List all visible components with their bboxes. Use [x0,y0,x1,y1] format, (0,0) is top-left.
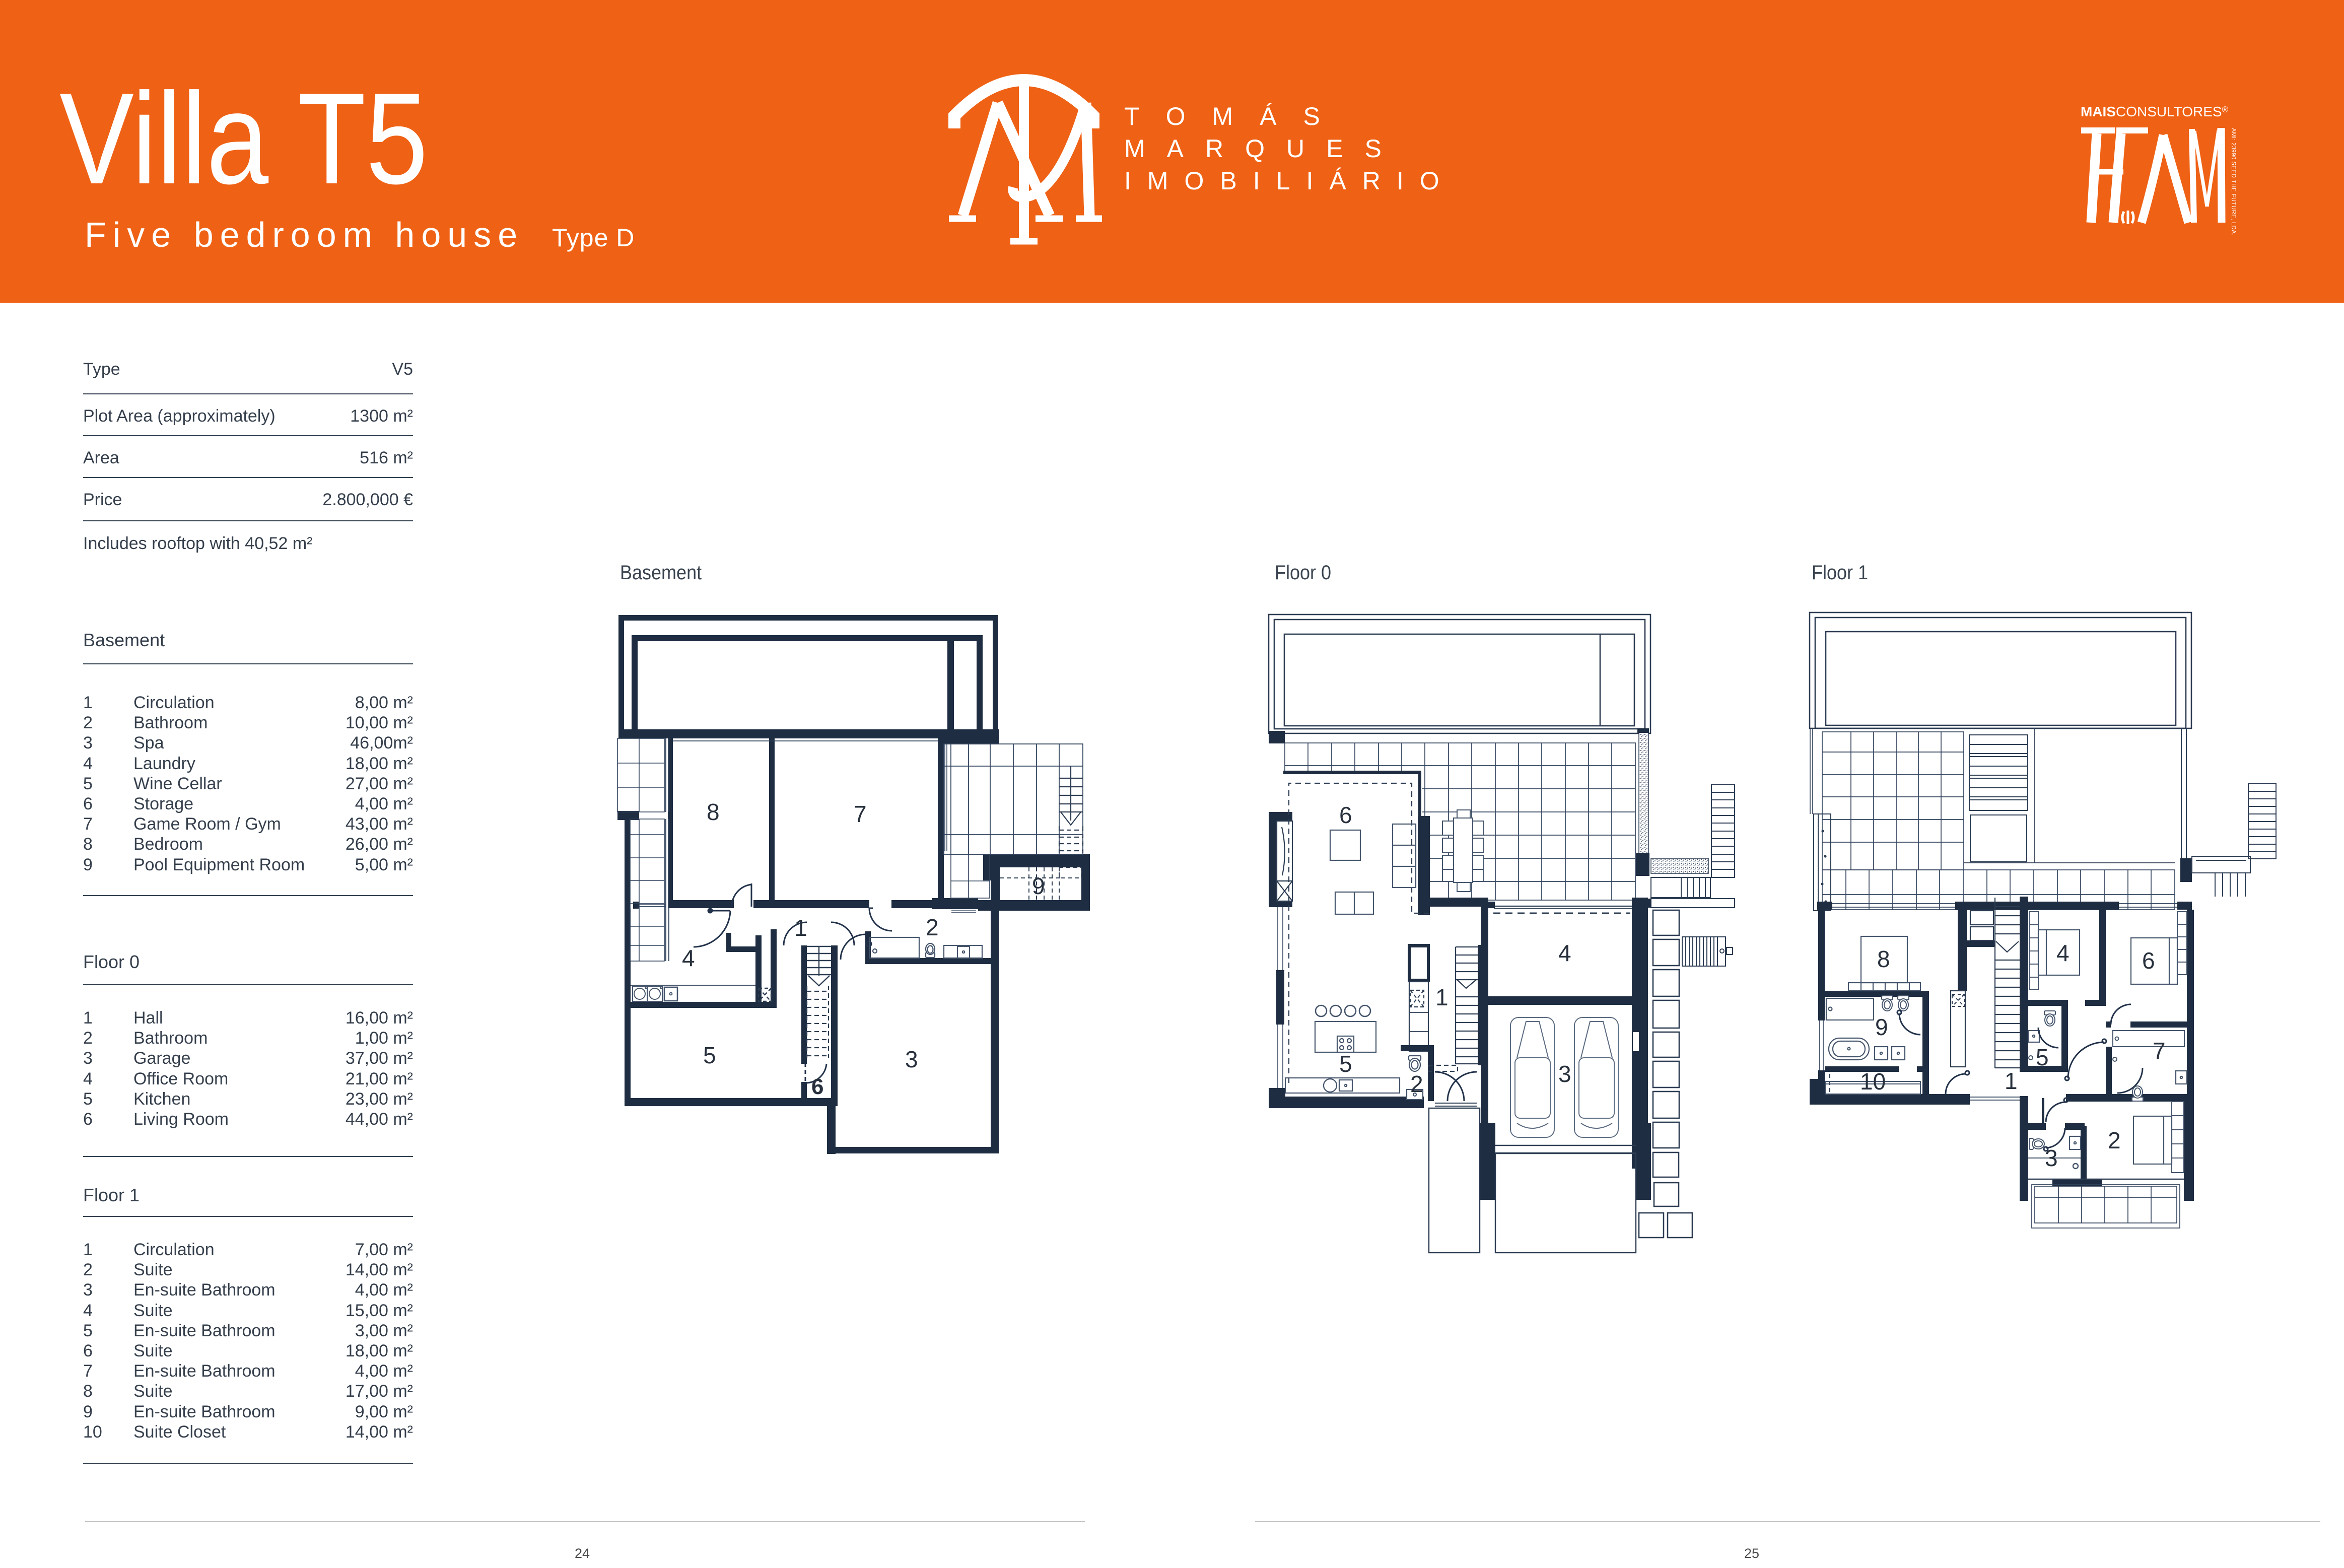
svg-text:6: 6 [811,1074,823,1099]
svg-text:1: 1 [794,915,807,941]
svg-text:2: 2 [926,914,939,940]
svg-text:4: 4 [1558,940,1571,966]
svg-text:7: 7 [854,801,867,827]
svg-text:8: 8 [1877,946,1890,972]
svg-text:9: 9 [1032,873,1045,899]
svg-text:5: 5 [703,1042,716,1068]
svg-text:3: 3 [905,1046,918,1072]
svg-text:1: 1 [1435,984,1449,1010]
svg-text:6: 6 [2142,947,2155,974]
svg-text:8: 8 [707,799,720,825]
svg-text:4: 4 [2056,940,2070,966]
svg-text:6: 6 [1339,802,1352,828]
svg-text:3: 3 [2045,1145,2058,1171]
svg-text:2: 2 [1410,1071,1423,1097]
svg-text:10: 10 [1860,1068,1886,1095]
svg-text:7: 7 [2153,1038,2166,1064]
svg-text:5: 5 [2036,1044,2049,1070]
svg-text:5: 5 [1339,1051,1352,1077]
svg-text:2: 2 [2108,1127,2121,1153]
svg-text:1: 1 [2005,1068,2018,1094]
svg-text:3: 3 [1558,1061,1571,1087]
svg-text:4: 4 [682,945,695,971]
svg-text:9: 9 [1875,1014,1888,1040]
